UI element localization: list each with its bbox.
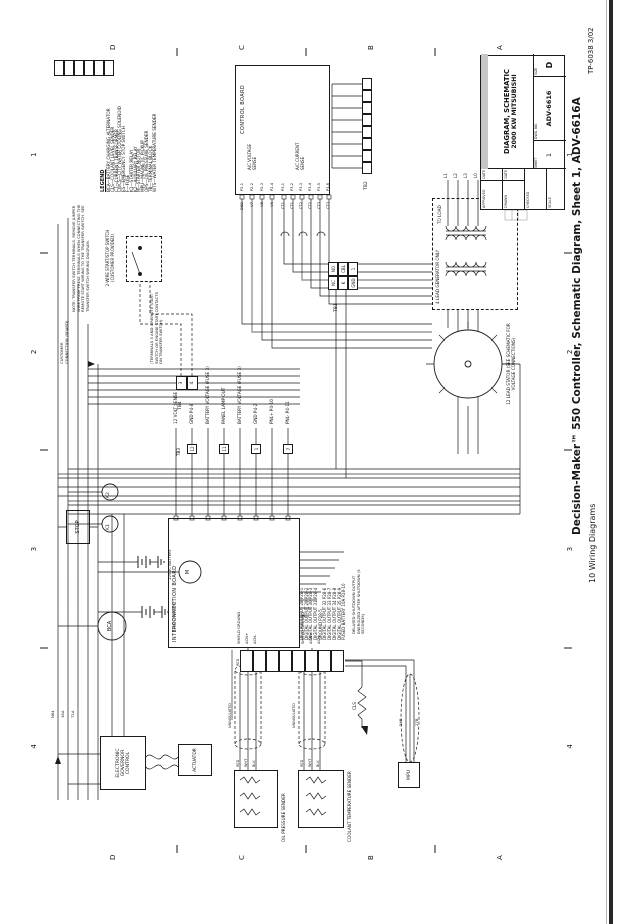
pin-label: P2-1: [237, 183, 247, 191]
revision-cell: [54, 60, 64, 76]
date-label: DATE: [481, 169, 502, 181]
to-load-label: TO LOAD: [437, 205, 442, 224]
zone-number: 4: [30, 744, 42, 748]
transfer-switch-note: NOTE: TRANSFER SWITCH TERMINALS. REMOVE …: [72, 196, 90, 312]
cable2-colors-left: REDWHTBLK: [300, 759, 324, 767]
terminal-cell: [318, 650, 331, 672]
terminal-cell: [292, 650, 305, 672]
size-letter: D: [539, 54, 559, 76]
mpu-label: MPU: [407, 770, 412, 780]
control-board-box: [235, 65, 330, 195]
k1-relay-label: K1: [106, 524, 111, 530]
wire-number-label: CT1: [288, 202, 297, 220]
zone-letter: A: [496, 38, 504, 50]
current-sense-label: A/C CURRENT SENSE: [296, 140, 306, 170]
wire-number-label: CT2: [306, 202, 315, 220]
title-block: APPROVED DATE DRAWN DATE CHECKED SCALE: [480, 55, 565, 210]
wire-color-label: WHT: [308, 759, 316, 767]
wire-color-label: BLK: [316, 759, 324, 767]
battery-symbols: [138, 556, 168, 618]
governor-label: ELECTRONIC GOVERNOR CONTROL: [116, 739, 131, 787]
voltage-wire-labels: GNDV7V8V9: [237, 202, 277, 220]
bca-label: BCA: [107, 612, 113, 640]
actuator-box: ACTUATOR: [178, 744, 212, 776]
board-pin-label: PNL+ P4-10: [264, 366, 280, 424]
drawing-title-line2: 2000 KW MITSUBISHI: [511, 74, 518, 148]
scale-label: SCALE: [547, 196, 567, 209]
board-pin-label: ACN+: [244, 612, 252, 644]
tb1-terminal-cell: GND: [348, 276, 358, 290]
oil-pressure-sender-box: [234, 770, 278, 828]
pin-label: P2-2: [247, 183, 257, 191]
approved-label: APPROVED: [481, 189, 502, 209]
wire-number-label: V8: [257, 202, 267, 220]
tb4-terminal-cell: 3: [176, 376, 187, 390]
legend-list: BCA—BATTERY CHARGING ALTERNATORCLS—COOLA…: [107, 74, 156, 192]
terminal-cell: [362, 102, 372, 114]
tb1-terminals: NCNOKCBLGND1: [328, 262, 358, 290]
stator-label: 12 LEAD STATOR (SEE SCHEMATIC FOR VOLTAG…: [506, 316, 516, 412]
cable1-uninsulated-label: UNINSULATED: [228, 703, 232, 728]
coolant-temp-sender-label: COOLANT TEMPERATURE SENDER: [347, 762, 352, 842]
cable1-colors-left: REDWHTBLK: [236, 759, 260, 767]
tb3-terminals: 121117: [187, 444, 293, 454]
wire-color-label: BLK: [252, 759, 260, 767]
terminal-cell: [266, 650, 279, 672]
zone-numbers-top: 4321: [30, 56, 42, 845]
interconnection-board-box: [168, 518, 300, 648]
tb2-label: TB2: [364, 181, 369, 190]
wire-number-label: CT3: [315, 202, 324, 220]
pin-label: P3-2: [288, 183, 297, 191]
zone-letters-right: DCBA: [48, 38, 564, 50]
terminal-cell: [362, 114, 372, 126]
customer-connection-label: CUSTOMER CONNECTION (BOARD): [60, 316, 69, 364]
load-wire-label: L3: [463, 173, 473, 178]
wire-71a: 71A: [71, 711, 76, 718]
four-lead-generator-label: 4 LEAD GENERATOR ONLY: [435, 250, 440, 304]
wire-number-label: V7: [247, 202, 257, 220]
revision-cell: [74, 60, 84, 76]
tp-number: TP-6038 3/02: [587, 27, 595, 74]
manual-page: 4321 4321 DCBA DCBA LEGEND BCA—BATTERY C…: [0, 0, 619, 924]
board-pin-label: BATTERY VOLTAGE (FUSE 3): [200, 366, 216, 424]
tb4-label: TB4: [178, 401, 183, 410]
zone-number: 2: [30, 350, 42, 354]
start-stop-switch-box: [126, 236, 162, 282]
k2-relay-label: K2: [106, 492, 111, 498]
zone-letter: D: [109, 38, 117, 50]
wire-color-label: WHT: [244, 759, 252, 767]
pin-label: P3-6: [324, 183, 333, 191]
load-wire-labels: L1L2L3L0: [443, 173, 483, 178]
tb3-terminal-cell: 12: [187, 444, 197, 454]
checked-label: CHECKED: [525, 191, 546, 209]
drawing-title-line1: DIAGRAM, SCHEMATIC: [503, 69, 511, 154]
twisted-pair: [146, 755, 178, 769]
board-pin-label: PNL- P4-11: [280, 366, 296, 424]
pin-label: P2-4: [267, 183, 277, 191]
zone-letter: C: [238, 38, 246, 50]
delayed-shutdown-note: DELAYED SHUTDOWN OUTPUT ENERGIZED AFTER …: [352, 560, 366, 634]
scan-edge: [609, 0, 613, 924]
wire-n64: N64: [51, 710, 56, 718]
drawn-label: DRAWN: [503, 194, 524, 209]
tb1-label: TB1: [334, 303, 339, 312]
terminal-cell: [362, 138, 372, 150]
wire-27b: 27B: [415, 719, 420, 726]
zone-letter: D: [109, 848, 117, 860]
terminal-cell: [240, 650, 253, 672]
legend-item: WTS—WATER TEMPERATURE SENDER: [153, 74, 157, 192]
tb1-terminal-cell: K: [338, 276, 348, 290]
tb3-terminal-cell: 11: [219, 444, 229, 454]
title-block-shading: [481, 54, 488, 169]
board-pin-label: BATTERY VOLTAGE (FUSE 3): [232, 366, 248, 424]
load-wire-label: L2: [453, 173, 463, 178]
voltage-sense-label: A/C VOLTAGE SENSE: [248, 140, 258, 170]
zone-number: 1: [30, 152, 42, 156]
board-pin-label: 12 VOLT SENSE: [168, 366, 184, 424]
tb3-terminal-cell: 7: [283, 444, 293, 454]
terminal-cell: [253, 650, 266, 672]
tb1-terminal-cell: NO: [328, 262, 338, 276]
tb1-terminal-cell: NC: [328, 276, 338, 290]
zone-letter: B: [367, 848, 375, 860]
board-can-labels-1: SHIELD GROUNDACN+ACN-: [236, 612, 260, 644]
tb3-label: TB3: [176, 448, 181, 456]
zone-number: 3: [566, 547, 578, 551]
board-pin-label: PANEL LAMP OUT: [216, 366, 232, 424]
mpu-box: MPU: [398, 762, 420, 788]
board-pin-label: GND P4-2: [248, 366, 264, 424]
digital-output-label: FUSED BATTERY 10A P28-10: [342, 583, 347, 640]
title-block-number-row: SHEET 1 DWG. NO. ADV-6616 SIZE D: [533, 54, 566, 169]
legend: LEGEND BCA—BATTERY CHARGING ALTERNATORCL…: [100, 74, 156, 192]
footer-section: 10 Wiring Diagrams: [588, 504, 598, 583]
tb1-terminal-cell: CBL: [338, 262, 348, 276]
voltage-sense-pins: P2-1P2-2P2-3P2-4: [237, 183, 277, 191]
wire-color-label: RED: [300, 759, 308, 767]
title-block-approvals: APPROVED DATE DRAWN DATE CHECKED SCALE: [481, 168, 566, 209]
cls-label: CLS: [352, 702, 357, 710]
pin-label: P3-1: [279, 183, 288, 191]
terminal-cell: [362, 126, 372, 138]
board-right-pin-labels: 12 VOLT SENSEGND P4-8BATTERY VOLTAGE (FU…: [168, 366, 296, 424]
interconnection-board-label: INTERCONNECTION BOARD: [172, 566, 178, 642]
schematic-sheet: 4321 4321 DCBA DCBA LEGEND BCA—BATTERY C…: [0, 0, 619, 924]
date-label: DATE: [503, 169, 524, 181]
four-lead-generator-box: [432, 198, 518, 310]
zone-number: 4: [566, 744, 578, 748]
ct-symbols: [281, 232, 325, 236]
board-pin-label: GND P4-8: [184, 366, 200, 424]
terminal-cell: [331, 650, 344, 672]
governor-box: ELECTRONIC GOVERNOR CONTROL: [100, 736, 146, 790]
current-wire-labels: CT1CT1CT2CT2CT3CT3: [279, 202, 333, 220]
figure-caption: Decision-Maker™ 550 Controller, Schemati…: [571, 97, 584, 535]
wire-24b: 24B: [399, 719, 404, 726]
zone-letter: C: [238, 848, 246, 860]
start-stop-label: 2-WIRE START/STOP SWITCH (CUSTOMER PROVI…: [106, 220, 116, 296]
tb2-terminals: [362, 78, 372, 174]
wire-number-label: CT1: [279, 202, 288, 220]
terminal-cell: [279, 650, 292, 672]
zone-letter: B: [367, 38, 375, 50]
wire-number-label: GND: [237, 202, 247, 220]
tb4-terminals: 34: [176, 376, 198, 390]
sender-terminal-strip: [240, 650, 344, 672]
scan-edge-light: [606, 0, 607, 924]
title-block-title-area: DIAGRAM, SCHEMATIC 2000 KW MITSUBISHI: [481, 54, 534, 169]
wire-16a: 16A: [61, 711, 66, 718]
wire-number-label: CT2: [297, 202, 306, 220]
tb3-terminal-cell: 1: [251, 444, 261, 454]
actuator-label: ACTUATOR: [193, 748, 198, 772]
terminal-cell: [362, 78, 372, 90]
cable2-uninsulated-label: UNINSULATED: [292, 703, 296, 728]
remote-start-note: (TERMINALS 3 AND 4 REMOTE START SWITCH O…: [150, 290, 164, 364]
terminal-cell: [362, 150, 372, 162]
terminal-cell: [362, 90, 372, 102]
revision-cell: [84, 60, 94, 76]
board-pin-label: ACN-: [252, 612, 260, 644]
oil-pressure-sender-label: OIL PRESSURE SENDER: [281, 762, 286, 842]
emergency-stop-box: STOP: [66, 510, 90, 544]
coolant-temp-sender-box: [298, 770, 344, 828]
current-sense-pins: P3-1P3-2P3-3P3-4P3-5P3-6: [279, 183, 333, 191]
wire-number-label: V9: [267, 202, 277, 220]
zone-letter: A: [496, 848, 504, 860]
pin-label: P2-3: [257, 183, 267, 191]
wire-number-label: CT3: [324, 202, 333, 220]
load-wire-label: L1: [443, 173, 453, 178]
dwg-number: ADV-6616: [539, 77, 559, 140]
sheet-number: 1: [539, 141, 559, 169]
pin-label: P3-3: [297, 183, 306, 191]
control-board-label: CONTROL BOARD: [240, 85, 246, 134]
revision-cell: [64, 60, 74, 76]
pin-label: P3-4: [306, 183, 315, 191]
terminal-cell: [305, 650, 318, 672]
pin-label: P3-5: [315, 183, 324, 191]
cls-resistor-symbol: [358, 687, 366, 719]
wire-color-label: RED: [236, 759, 244, 767]
digital-output-list: DIGITAL OUTPUT 28 P28-1DIGITAL OUTPUT 29…: [300, 583, 347, 640]
board-pin-label: SHIELD GROUND: [236, 612, 244, 644]
terminal-cell: [362, 162, 372, 174]
tb1-terminal-cell: 1: [348, 262, 358, 276]
zone-number: 3: [30, 547, 42, 551]
zone-letters-left: DCBA: [48, 848, 564, 860]
emergency-stop-label: STOP: [75, 520, 81, 533]
tb4-terminal-cell: 4: [187, 376, 198, 390]
